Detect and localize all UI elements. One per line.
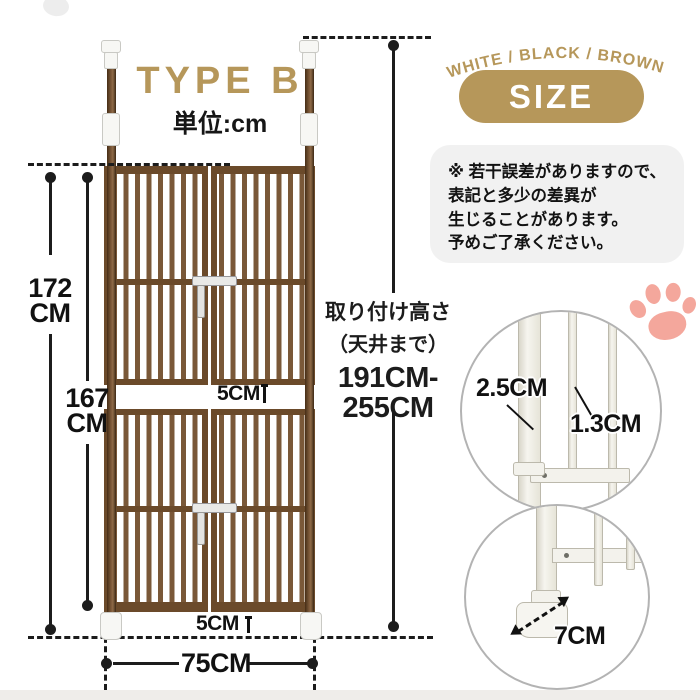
paw-icon [626, 276, 700, 352]
pole-thickness-label: 2.5CM [476, 374, 547, 403]
middle-gap-bracket [263, 384, 266, 403]
foot-length-label: 7CM [554, 622, 605, 651]
gate-middle-gap-band [104, 379, 208, 415]
width-label: 75CM [181, 648, 247, 679]
gate-foot-left [100, 612, 122, 640]
dim-line-172 [49, 181, 52, 255]
bottom-gap-bracket [247, 616, 250, 633]
dim-line-width [113, 662, 179, 665]
disclaimer-line: 表記と多少の差異が [448, 185, 666, 209]
dim-line-172 [49, 334, 52, 626]
thin-bar-photo [594, 504, 603, 586]
install-height-title: 取り付け高さ [310, 296, 466, 326]
gate-top-dashed-line [28, 163, 230, 166]
total-height-label: 172 CM [24, 276, 76, 326]
floor-dashed-line [28, 636, 433, 639]
ceiling-dashed-line-right [303, 36, 431, 39]
dim-line-167 [86, 181, 89, 381]
disclaimer-line: ※ 若干誤差がありますので、 [448, 161, 666, 185]
thin-bar-photo [626, 504, 635, 570]
dim-dot [82, 600, 93, 611]
gate-foot-right [300, 612, 322, 640]
dim-dot [45, 624, 56, 635]
dim-line-167 [86, 444, 89, 604]
gate-latch-upper-handle [197, 285, 205, 318]
gate-left-panel [104, 166, 208, 612]
pole-adjuster-left [102, 113, 120, 146]
unit-label: 単位:cm [120, 104, 320, 140]
type-label: TYPE B [120, 60, 320, 103]
install-height-subtitle: （天井まで） [310, 328, 466, 357]
dim-dot [307, 658, 318, 669]
dim-dot [388, 621, 399, 632]
pole-adjuster-right [300, 113, 318, 146]
disclaimer-box: ※ 若干誤差がありますので、 表記と多少の差異が 生じることがあります。 予めご… [430, 145, 684, 263]
screw-dot [564, 553, 569, 558]
install-height-range: 191CM- 255CM [310, 363, 466, 423]
dim-line-install [392, 49, 395, 293]
bar-thickness-label: 1.3CM [570, 410, 641, 439]
paw-icon-faint [27, 0, 85, 27]
bottom-gap-label: 5CM [196, 612, 239, 636]
middle-gap-label: 5CM [217, 382, 260, 406]
dim-line-install [392, 412, 395, 624]
panel-height-label: 167 CM [61, 386, 113, 436]
pole-cap-right [302, 52, 316, 69]
gate-latch-lower-handle [197, 512, 205, 545]
detail-circle-thickness: 2.5CM 1.3CM [460, 310, 662, 512]
disclaimer-line: 予めご了承ください。 [448, 232, 666, 256]
size-badge: SIZE [459, 70, 644, 123]
detail-circle-foot: 7CM [464, 504, 650, 690]
dim-dot [101, 658, 112, 669]
dim-line-width [249, 662, 311, 665]
product-size-diagram: TYPE B 単位:cm WHITE / BLACK / BROWN SIZE … [0, 0, 700, 700]
pole-cap-left [104, 52, 118, 69]
pole-collar-photo [513, 462, 545, 476]
install-height-block: 取り付け高さ （天井まで） 191CM- 255CM [310, 296, 466, 423]
footer-strip [0, 690, 700, 700]
disclaimer-line: 生じることがあります。 [448, 209, 666, 233]
